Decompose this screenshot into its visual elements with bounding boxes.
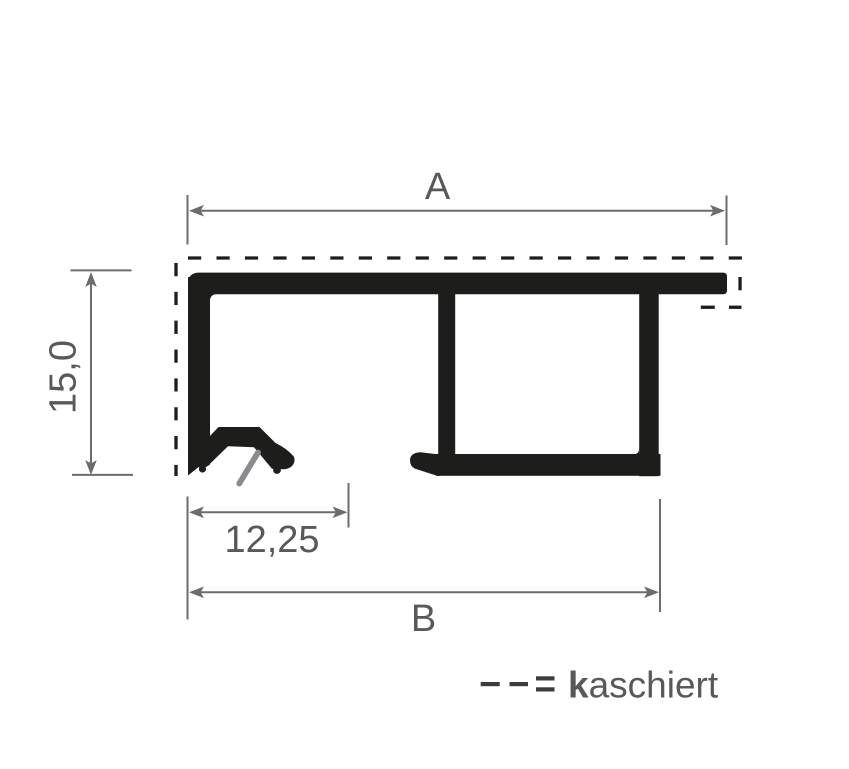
svg-text:A: A — [425, 166, 451, 208]
svg-text:15,0: 15,0 — [43, 340, 85, 414]
svg-text:kaschiert: kaschiert — [568, 665, 719, 706]
svg-text:12,25: 12,25 — [224, 519, 319, 561]
svg-text:B: B — [411, 598, 436, 640]
